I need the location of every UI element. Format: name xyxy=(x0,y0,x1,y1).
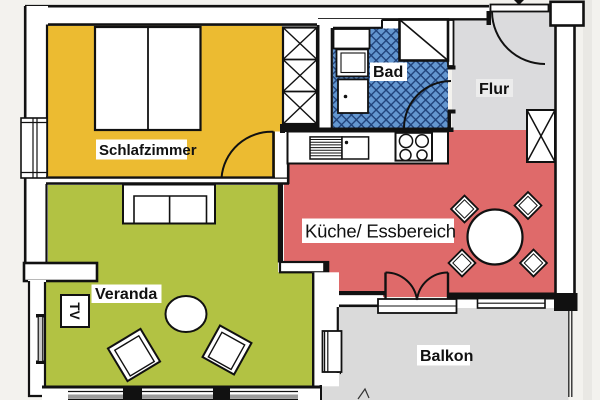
svg-text:Küche/ Essbereich: Küche/ Essbereich xyxy=(305,221,456,242)
svg-text:Veranda: Veranda xyxy=(95,286,157,303)
svg-text:Balkon: Balkon xyxy=(420,348,473,365)
svg-text:Flur: Flur xyxy=(479,81,509,98)
svg-text:Schlafzimmer: Schlafzimmer xyxy=(99,142,197,159)
svg-text:Bad: Bad xyxy=(373,64,403,81)
svg-text:TV: TV xyxy=(67,302,82,319)
